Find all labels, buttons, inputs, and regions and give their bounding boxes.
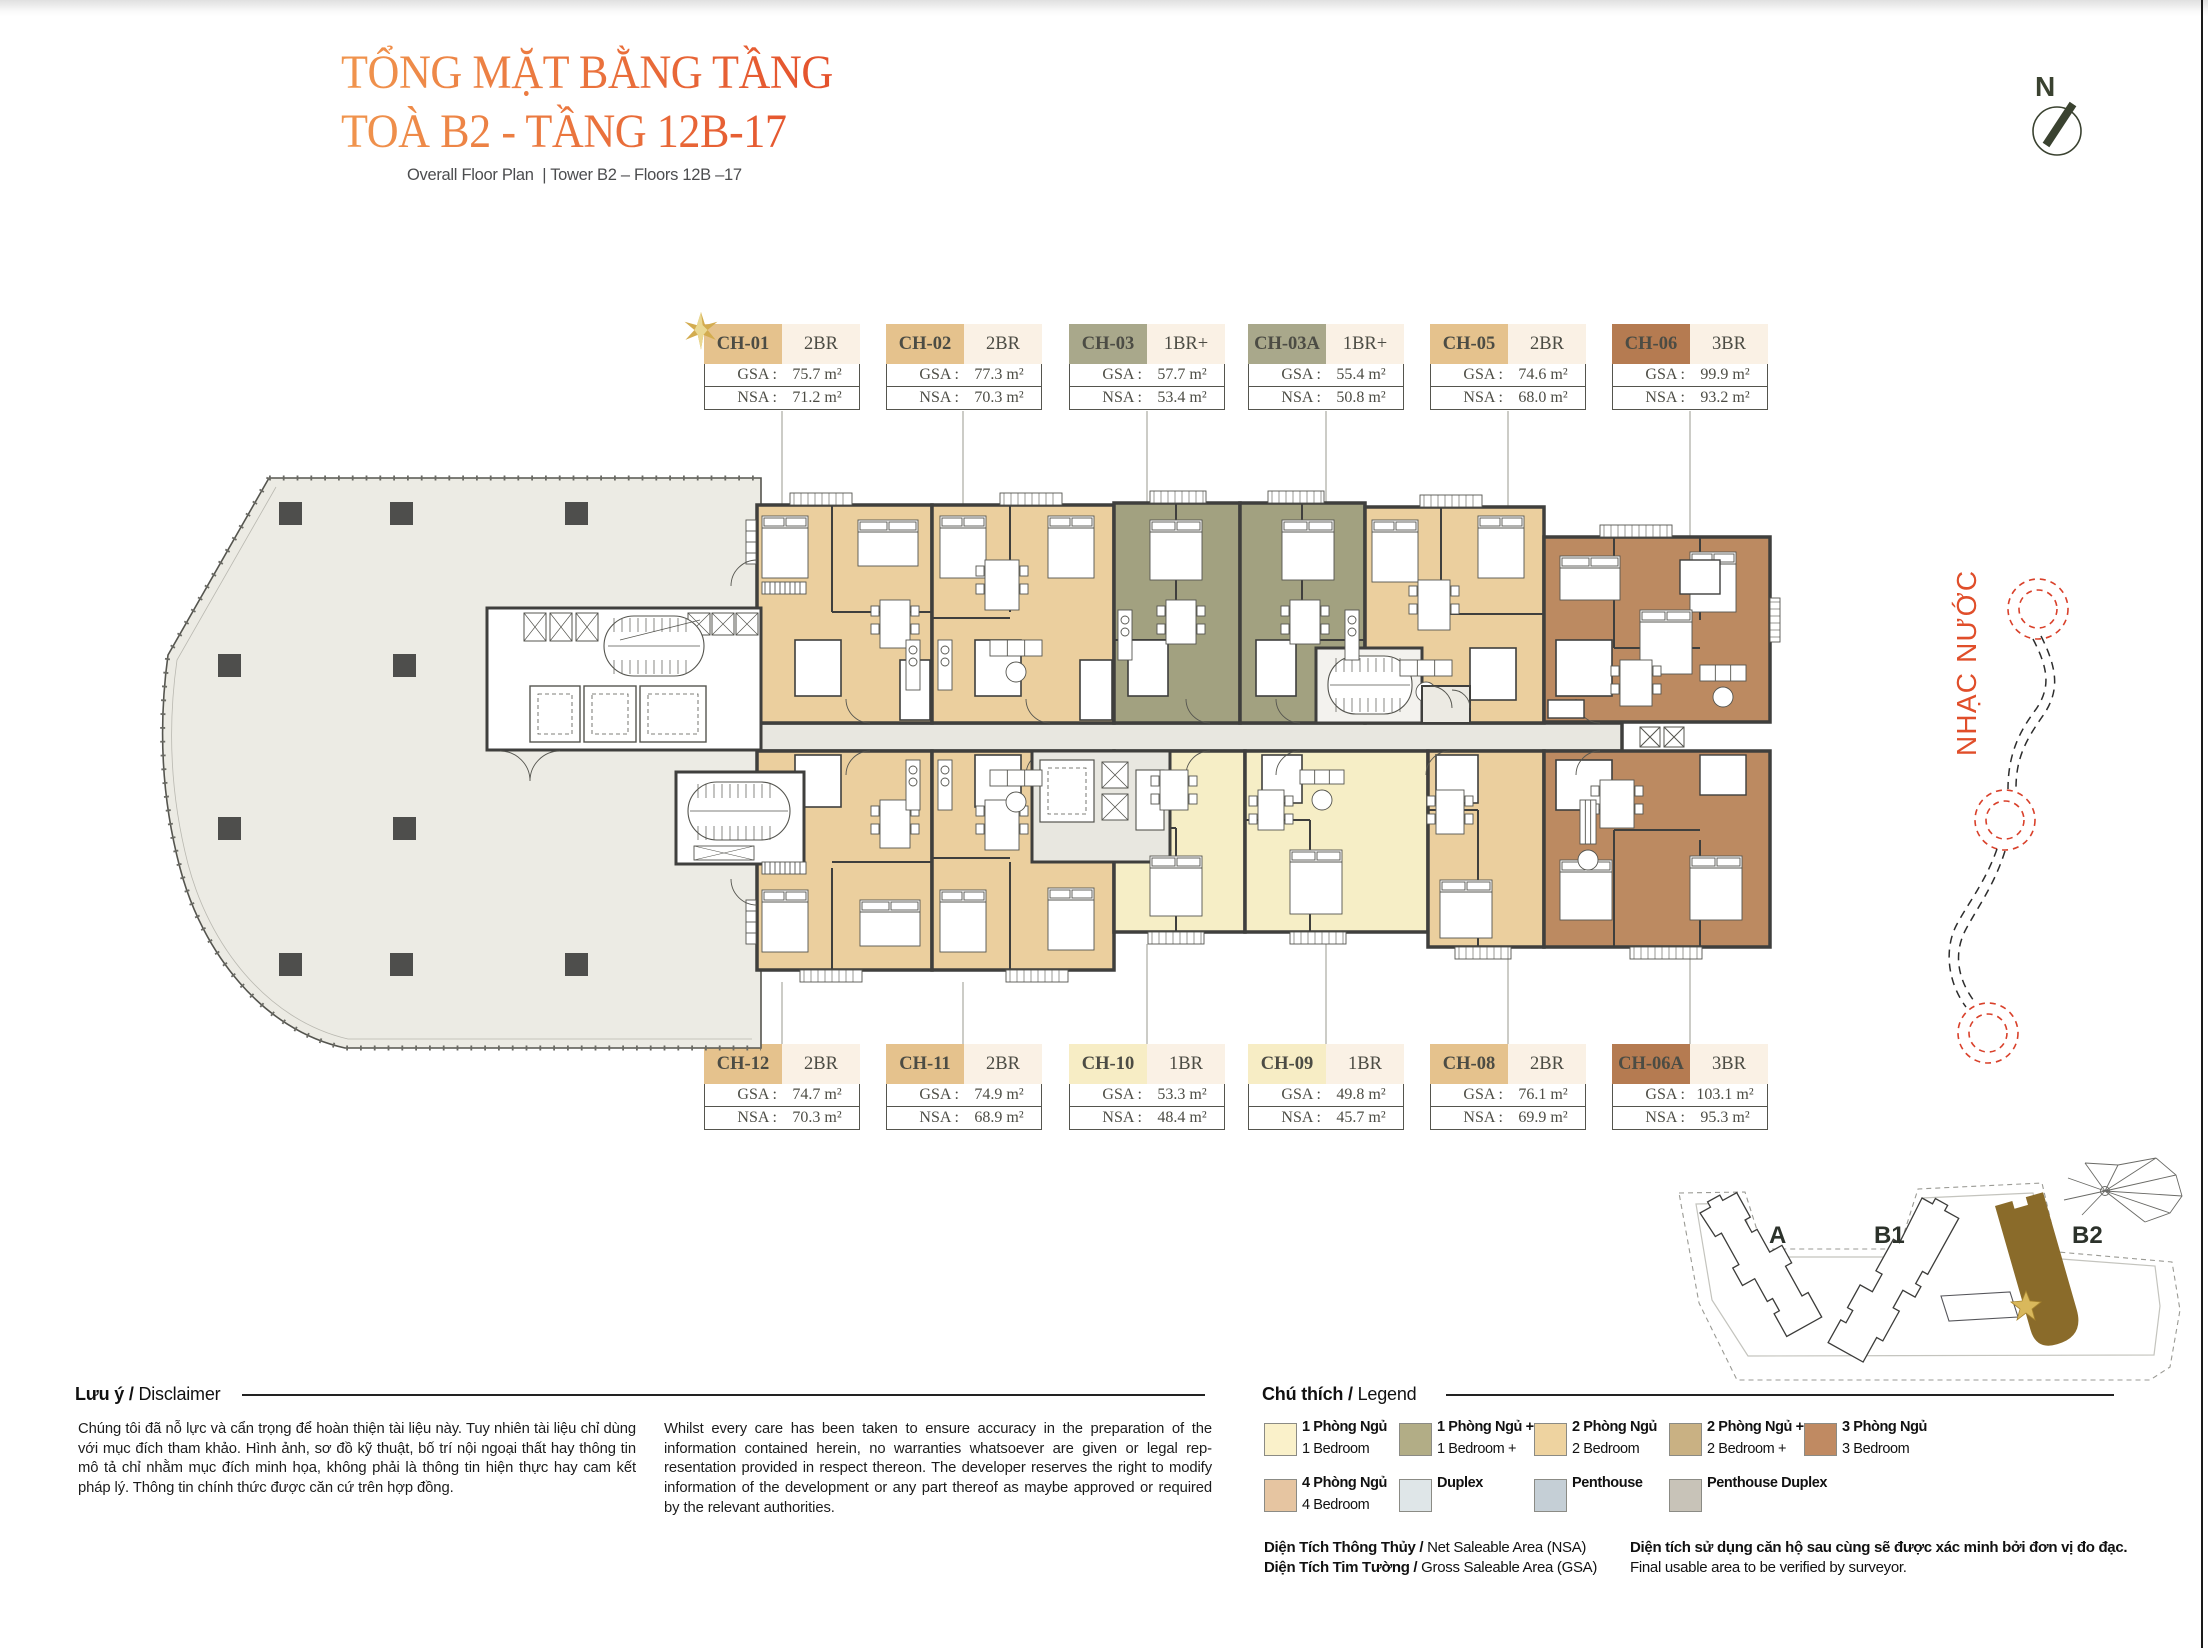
svg-text:A: A	[1769, 1222, 1786, 1249]
svg-text:B1: B1	[1874, 1222, 1905, 1249]
svg-text:B2: B2	[2072, 1222, 2103, 1249]
svg-text:NHẠC NƯỚC: NHẠC NƯỚC	[1951, 570, 1982, 756]
svg-text:N: N	[2035, 71, 2056, 102]
